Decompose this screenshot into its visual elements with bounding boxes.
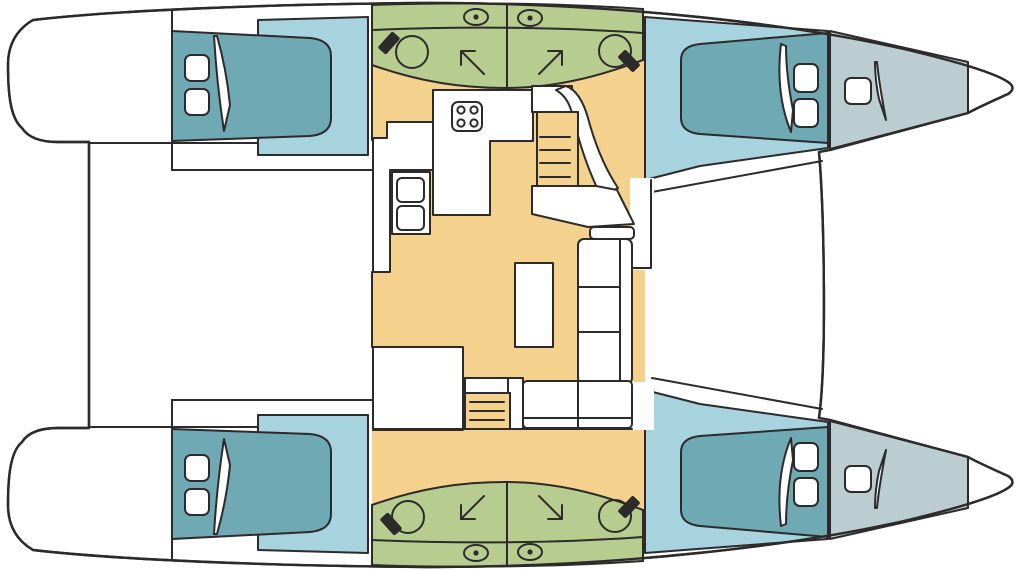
deck-plan-drawing <box>0 0 1024 570</box>
catamaran-floor-plan <box>0 0 1024 570</box>
bed-port-forward <box>681 33 828 143</box>
deck-hatch-starboard <box>845 466 871 492</box>
sofa-armrest <box>590 227 634 239</box>
deck-hatch-port <box>845 78 871 104</box>
stove-icon <box>452 102 482 131</box>
bed-starboard-aft <box>172 429 331 539</box>
bed-port-aft <box>172 31 331 141</box>
stairs-starboard <box>465 378 523 429</box>
bed-starboard-forward <box>681 427 828 537</box>
chart-desk <box>373 347 463 430</box>
coffee-table <box>515 263 553 347</box>
